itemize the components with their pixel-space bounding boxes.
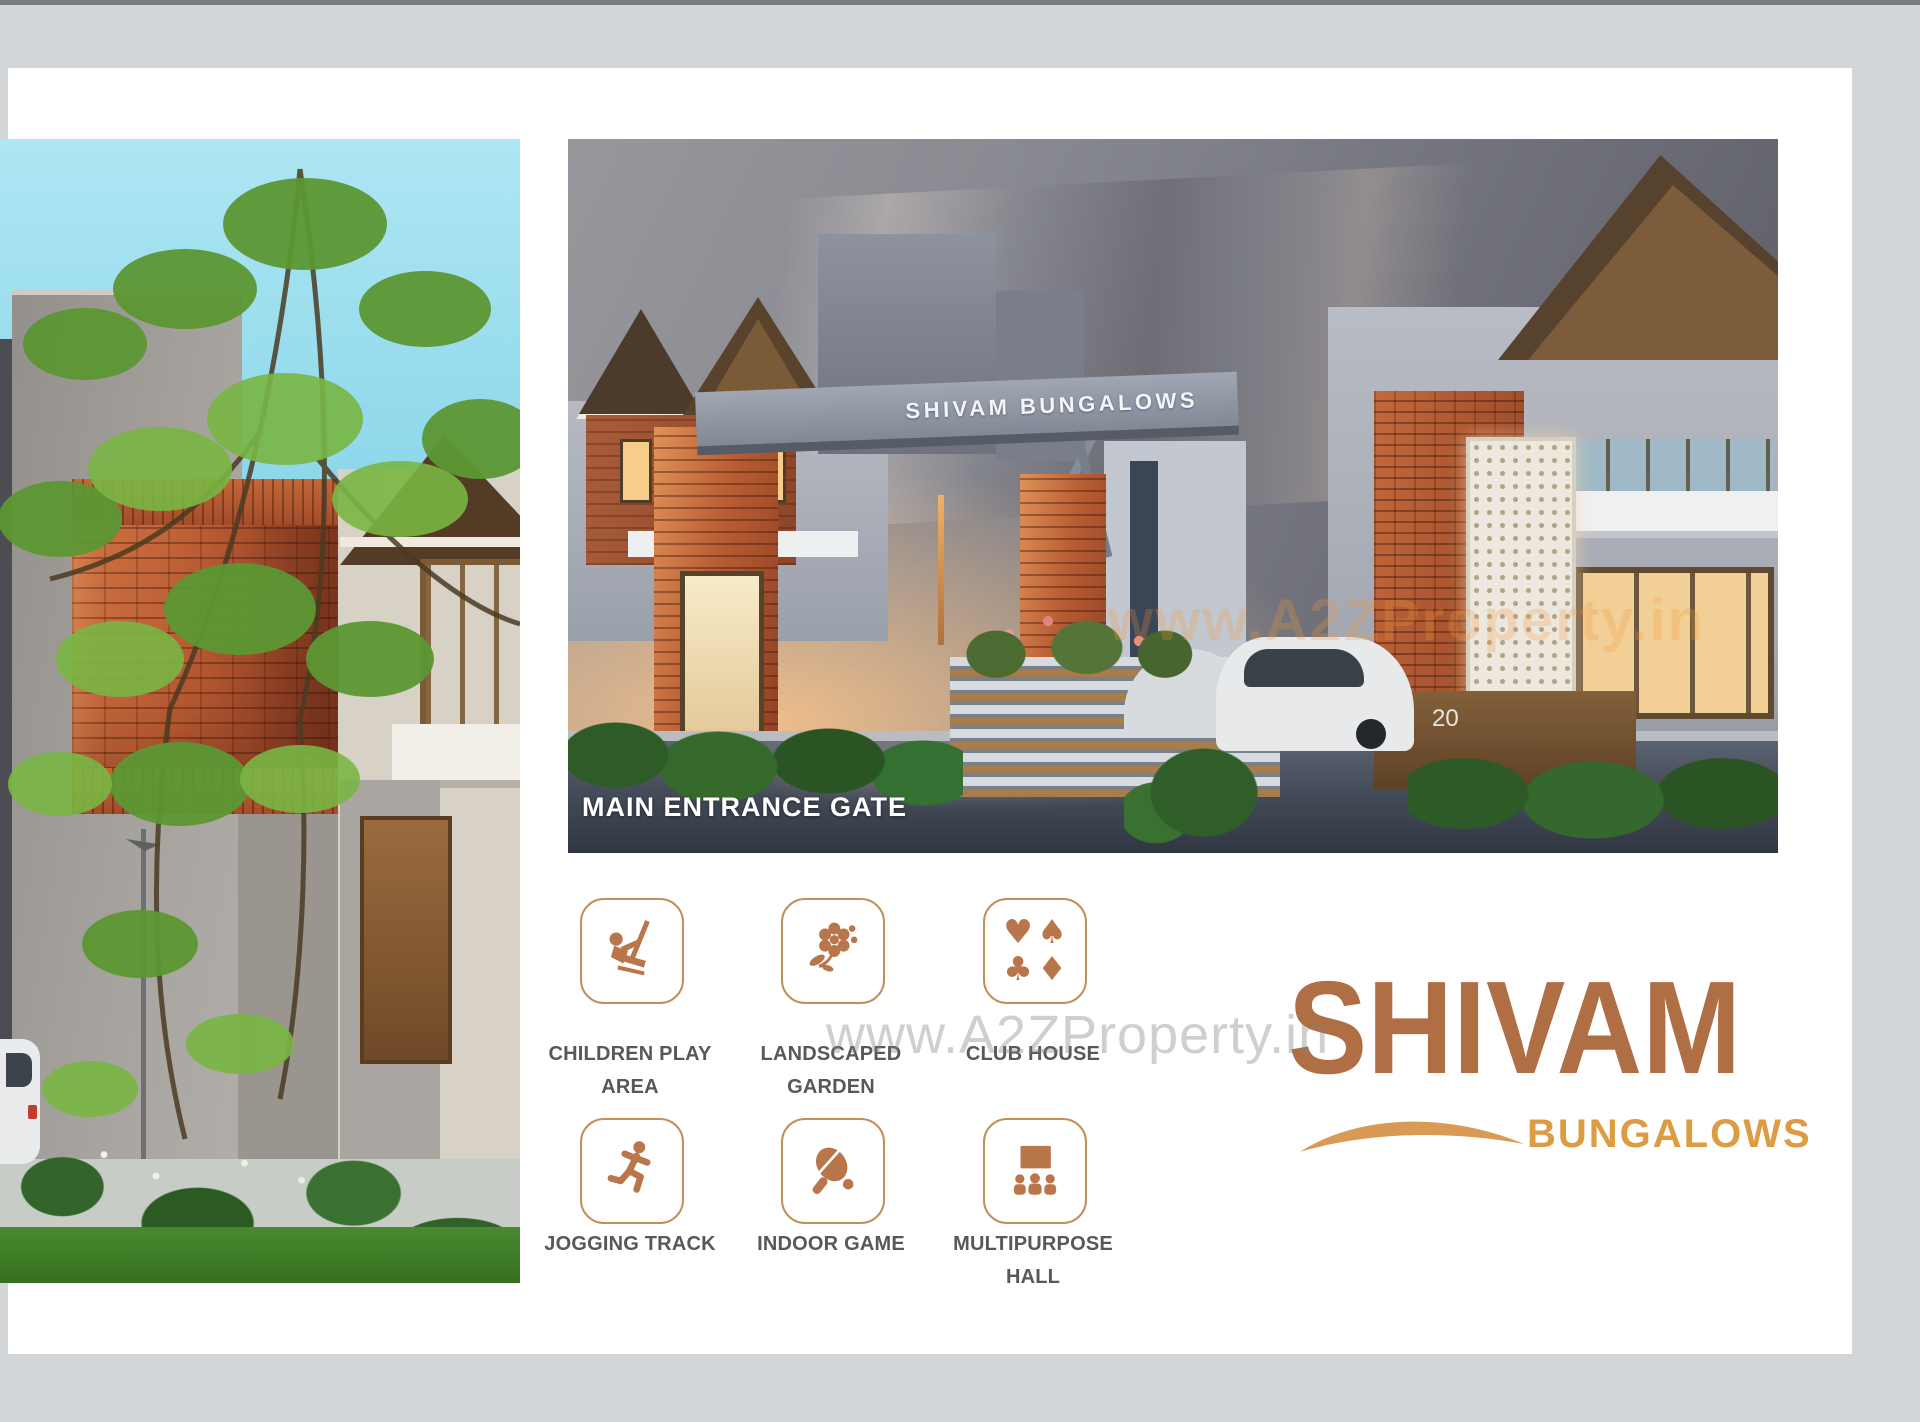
main-entrance-photo: SHIVAM BUNGALOWS 20 www.A2ZProperty.in M… [568,139,1778,853]
audience-screen-icon [1002,1138,1068,1204]
amenity-tile-indoor-game [781,1118,885,1224]
amenity-label-indoor-game: INDOOR GAME [721,1228,941,1261]
amenity-tile-multipurpose-hall [983,1118,1087,1224]
running-man-icon [599,1138,665,1204]
amenity-tile-club-house: ♥ ♠ ♣ ♦ [983,898,1087,1004]
jali-screen-graphic [1466,437,1576,715]
logo-swoosh-icon [1296,1106,1528,1158]
diamond-suit-glyph: ♦ [1035,951,1069,988]
left-bungalow-photo [0,139,520,1283]
logo-title: SHIVAM [1288,962,1741,1094]
flower-icon [800,918,866,984]
amenity-tile-children-play [580,898,684,1004]
amenity-tile-jogging-track [580,1118,684,1224]
amenity-tile-landscaped-garden [781,898,885,1004]
top-border-strip [0,0,1920,5]
heart-suit-glyph: ♥ [1001,914,1035,951]
amenity-label-jogging-track: JOGGING TRACK [520,1228,740,1261]
photo-watermark: www.A2ZProperty.in [1108,587,1705,654]
lit-window-icon [620,439,652,503]
photo-caption: MAIN ENTRANCE GATE [582,792,907,823]
amenity-label-multipurpose-hall: MULTIPURPOSE HALL [923,1228,1143,1294]
card-suits-icon: ♥ ♠ ♣ ♦ [1001,914,1069,988]
swing-child-icon [599,918,665,984]
gate-sign-text: SHIVAM BUNGALOWS [735,387,1198,431]
hedge-right-graphic [1408,721,1778,853]
spade-suit-glyph: ♠ [1035,914,1069,951]
logo-subtitle: BUNGALOWS [1527,1112,1812,1157]
center-bush-graphic [1124,719,1284,853]
amenity-label-children-play: CHILDREN PLAY AREA [520,1038,740,1104]
club-suit-glyph: ♣ [1001,951,1035,988]
tree-graphic [0,139,520,1283]
page-watermark: www.A2ZProperty.in [826,1004,1329,1066]
table-tennis-icon [800,1138,866,1204]
